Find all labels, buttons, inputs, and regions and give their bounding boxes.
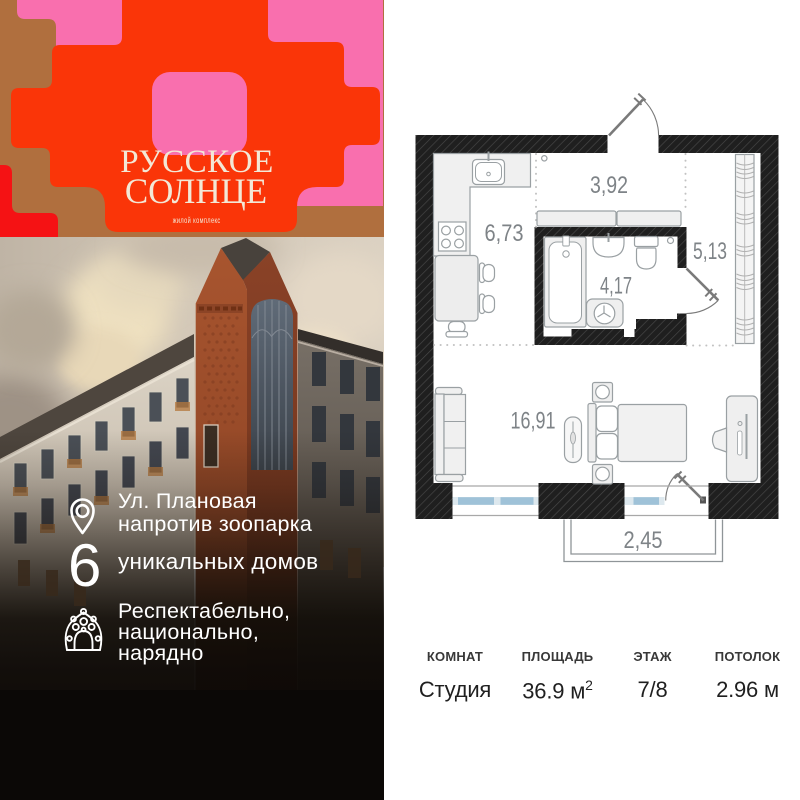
svg-text:6,73: 6,73	[485, 220, 524, 247]
svg-text:3,92: 3,92	[590, 172, 628, 199]
svg-text:2,45: 2,45	[624, 527, 663, 554]
svg-text:4,17: 4,17	[600, 273, 632, 300]
svg-text:16,91: 16,91	[511, 408, 556, 435]
svg-text:5,13: 5,13	[693, 238, 727, 265]
